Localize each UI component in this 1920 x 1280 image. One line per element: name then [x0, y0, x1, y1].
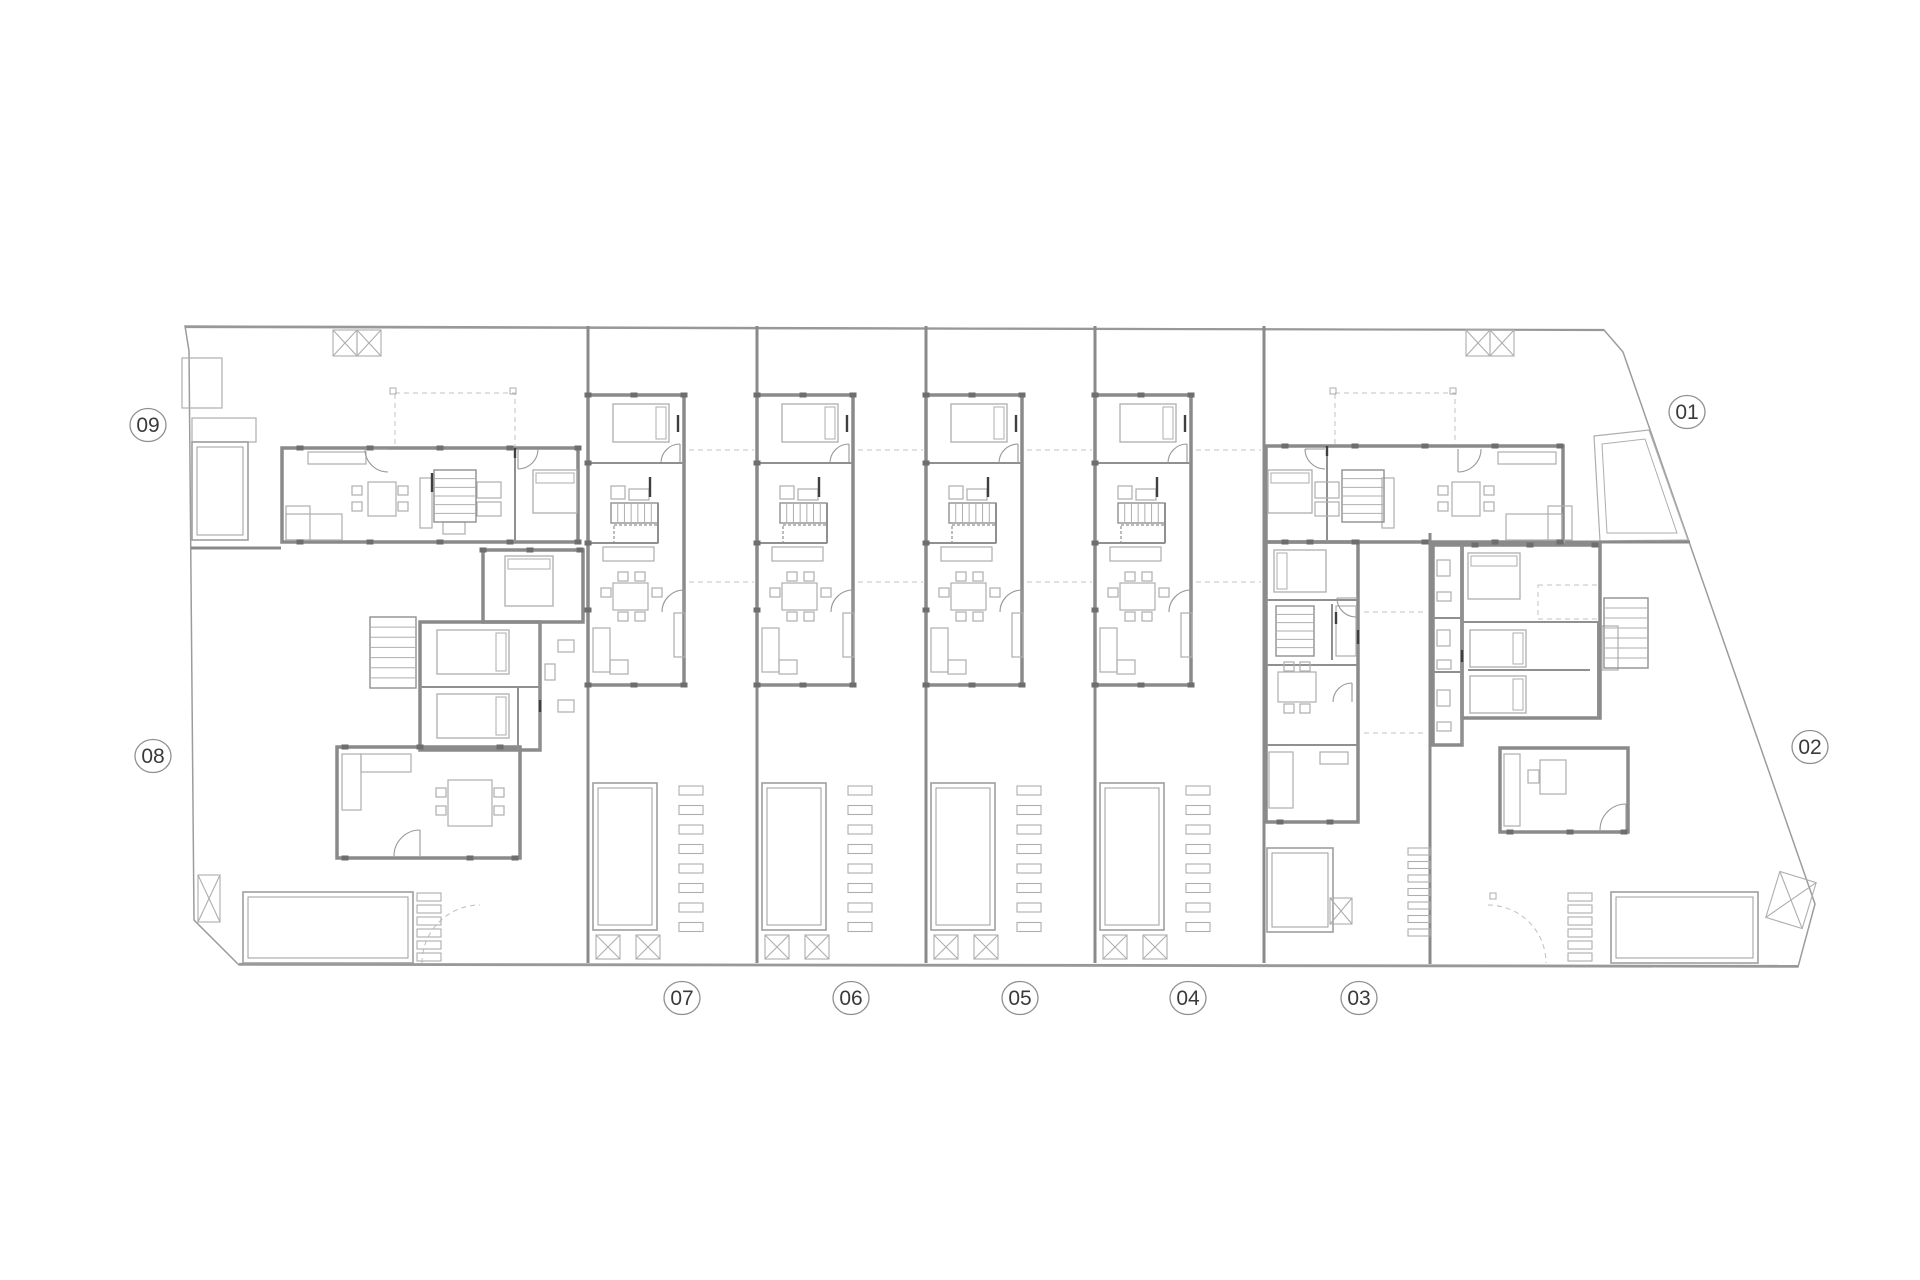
- pool: [593, 783, 657, 930]
- furniture: [787, 612, 797, 621]
- wall-column: [754, 541, 761, 546]
- wall-column: [497, 745, 504, 750]
- pool: [1611, 892, 1758, 963]
- step-slat: [417, 905, 441, 913]
- furniture: [420, 478, 432, 528]
- step-slat: [679, 806, 703, 815]
- furniture: [1284, 704, 1294, 713]
- wall-column: [342, 745, 349, 750]
- furniture: [398, 502, 408, 511]
- furniture: [1438, 502, 1448, 511]
- furniture: [1125, 612, 1135, 621]
- furniture: [1336, 606, 1356, 656]
- furniture: [770, 588, 780, 597]
- step-slat: [1568, 929, 1592, 937]
- furniture: [652, 588, 662, 597]
- wall-column: [1472, 543, 1479, 548]
- wall-column: [923, 541, 930, 546]
- wall-column: [1138, 393, 1145, 398]
- wall-column: [631, 393, 638, 398]
- wall-column: [1307, 540, 1314, 545]
- x-marker-cross: [596, 935, 620, 959]
- furniture: [956, 572, 966, 581]
- unit-label-06: 06: [839, 987, 862, 1010]
- pool-inner: [1616, 897, 1753, 958]
- dashed-swing: [422, 905, 480, 963]
- wall-column: [754, 608, 761, 613]
- wall-column: [1019, 683, 1026, 688]
- x-marker-cross: [934, 935, 958, 959]
- wall-column: [631, 683, 638, 688]
- step-slat: [1408, 902, 1430, 909]
- wall-column: [297, 446, 304, 451]
- pool-inner: [248, 897, 408, 958]
- furniture: [545, 664, 555, 680]
- bed-pillow: [536, 473, 574, 483]
- furniture: [1100, 628, 1117, 672]
- wall-column: [923, 683, 930, 688]
- furniture: [192, 418, 256, 442]
- furniture: [990, 588, 1000, 597]
- step-slat: [1186, 864, 1210, 873]
- step-slat: [848, 884, 872, 893]
- furniture: [368, 482, 396, 516]
- wall-column: [754, 683, 761, 688]
- step-slat: [1017, 923, 1041, 932]
- step-slat: [1186, 845, 1210, 854]
- floor-plan-svg: 090807060504030201: [0, 0, 1920, 1280]
- furniture: [949, 486, 963, 499]
- x-marker-cross: [805, 935, 829, 959]
- wall-column: [467, 856, 474, 861]
- furniture: [951, 583, 986, 610]
- step-slat: [1017, 864, 1041, 873]
- step-slat: [1568, 905, 1592, 913]
- step-slat: [848, 825, 872, 834]
- step-slat: [848, 806, 872, 815]
- furniture: [610, 660, 628, 674]
- x-marker-cross: [765, 935, 789, 959]
- unit-label-05: 05: [1008, 987, 1031, 1010]
- furniture: [448, 780, 492, 826]
- pool-inner: [936, 788, 990, 925]
- wall-column: [1567, 830, 1574, 835]
- house-wall: [1462, 545, 1600, 718]
- furniture: [1437, 722, 1451, 731]
- wall-column: [800, 393, 807, 398]
- wall-column: [575, 540, 582, 545]
- pool-inner: [767, 788, 821, 925]
- furniture: [308, 452, 366, 464]
- wall-column: [1592, 543, 1599, 548]
- bed: [1470, 630, 1526, 667]
- door-arc: [662, 590, 684, 612]
- furniture: [973, 612, 983, 621]
- furniture: [821, 588, 831, 597]
- furniture: [1504, 754, 1520, 826]
- site-top-wall: [185, 327, 1604, 330]
- bed: [613, 404, 669, 442]
- furniture: [629, 489, 649, 500]
- wall-column: [437, 540, 444, 545]
- door-arc: [830, 444, 849, 463]
- bed-pillow: [1471, 556, 1517, 566]
- furniture: [286, 506, 310, 540]
- step-slat: [1408, 848, 1430, 855]
- furniture: [973, 572, 983, 581]
- wall-column: [850, 683, 857, 688]
- step-slat: [1568, 941, 1592, 949]
- furniture: [1300, 662, 1310, 671]
- unit-label-07: 07: [670, 987, 693, 1010]
- door-arc: [365, 449, 388, 472]
- pergola-post-dot: [1490, 893, 1496, 899]
- step-slat: [417, 953, 441, 961]
- wall-column: [1188, 393, 1195, 398]
- wall-column: [585, 608, 592, 613]
- furniture: [1498, 452, 1556, 464]
- furniture: [1484, 502, 1494, 511]
- step-slat: [417, 893, 441, 901]
- wall-column: [1138, 683, 1145, 688]
- wall-column: [1557, 444, 1564, 449]
- wall-column: [1527, 543, 1534, 548]
- furniture: [1125, 572, 1135, 581]
- wall-column: [1492, 444, 1499, 449]
- step-slat: [679, 864, 703, 873]
- bed-pillow: [496, 633, 506, 671]
- wall-column: [1352, 444, 1359, 449]
- house-wall: [1266, 446, 1563, 542]
- wall-column: [923, 461, 930, 466]
- step-slat: [679, 786, 703, 795]
- furniture: [1108, 588, 1118, 597]
- bed: [1120, 404, 1176, 442]
- furniture: [558, 700, 574, 712]
- furniture: [494, 788, 504, 797]
- door-arc: [661, 444, 680, 463]
- furniture: [635, 612, 645, 621]
- step-slat: [1017, 786, 1041, 795]
- unit-label-03: 03: [1347, 987, 1370, 1010]
- step-slat: [1568, 917, 1592, 925]
- furniture: [477, 482, 501, 498]
- furniture: [1528, 770, 1539, 783]
- step-slat: [417, 941, 441, 949]
- stair-landing: [614, 525, 658, 543]
- furniture: [1110, 547, 1161, 561]
- unit-label-02: 02: [1798, 736, 1821, 759]
- furniture: [1548, 506, 1572, 540]
- step-slat: [1408, 929, 1430, 936]
- stair-landing: [1121, 525, 1165, 543]
- furniture: [342, 754, 361, 810]
- step-slat: [1186, 884, 1210, 893]
- x-marker-cross: [1103, 935, 1127, 959]
- step-slat: [679, 825, 703, 834]
- door-arc: [1000, 590, 1022, 612]
- door-arc: [518, 449, 538, 469]
- furniture: [1159, 588, 1169, 597]
- furniture: [286, 514, 342, 540]
- furniture: [1120, 583, 1155, 610]
- site-boundary: [185, 326, 1815, 967]
- step-slat: [679, 884, 703, 893]
- furniture: [1300, 704, 1310, 713]
- furniture: [618, 572, 628, 581]
- wall-column: [1327, 820, 1334, 825]
- step-slat: [679, 903, 703, 912]
- furniture: [352, 486, 362, 495]
- furniture: [1136, 489, 1156, 500]
- bed-pillow: [1513, 679, 1523, 710]
- furniture: [1142, 572, 1152, 581]
- wall-column: [1557, 540, 1564, 545]
- wall-column: [1282, 444, 1289, 449]
- furniture: [804, 572, 814, 581]
- step-slat: [1408, 889, 1430, 896]
- wall-column: [297, 540, 304, 545]
- x-marker-cross: [357, 330, 381, 356]
- furniture: [948, 660, 966, 674]
- wall-column: [923, 608, 930, 613]
- furniture: [1437, 592, 1451, 601]
- furniture: [782, 583, 817, 610]
- wall-column: [1422, 444, 1429, 449]
- step-slat: [1186, 903, 1210, 912]
- unit-label-01: 01: [1675, 401, 1698, 424]
- pool-inner: [1272, 853, 1328, 927]
- furniture: [1118, 486, 1132, 499]
- bed-pillow: [825, 407, 835, 439]
- furniture: [611, 486, 625, 499]
- wall-column: [437, 446, 444, 451]
- bed-pillow: [656, 407, 666, 439]
- wall-column: [512, 856, 519, 861]
- door-arc: [394, 830, 420, 856]
- furniture: [1142, 612, 1152, 621]
- step-slat: [848, 923, 872, 932]
- furniture: [443, 522, 465, 534]
- house-wall: [483, 550, 583, 622]
- furniture: [1506, 514, 1562, 540]
- pool: [1267, 848, 1333, 932]
- furniture: [1437, 560, 1450, 576]
- dashed-swing: [1488, 905, 1546, 963]
- x-marker-cross: [636, 935, 660, 959]
- wall-column: [480, 548, 487, 553]
- bed: [1268, 470, 1312, 513]
- wall-column: [800, 683, 807, 688]
- furniture: [1437, 690, 1450, 706]
- unit-label-08: 08: [141, 745, 164, 768]
- door-arc: [1600, 804, 1626, 830]
- furniture: [787, 572, 797, 581]
- dashed-pergola: [1538, 585, 1600, 619]
- furniture: [956, 612, 966, 621]
- wall-column: [1621, 830, 1628, 835]
- wall-column: [1188, 683, 1195, 688]
- wall-column: [1277, 820, 1284, 825]
- door-arc: [999, 444, 1018, 463]
- pool: [243, 892, 413, 963]
- furniture: [1540, 760, 1566, 794]
- x-marker-cross: [1490, 330, 1514, 356]
- step-slat: [1017, 884, 1041, 893]
- wall-column: [1092, 608, 1099, 613]
- pool-inner: [1105, 788, 1159, 925]
- wall-column: [1282, 540, 1289, 545]
- furniture: [779, 660, 797, 674]
- step-slat: [1568, 893, 1592, 901]
- pool: [192, 442, 248, 540]
- step-slat: [1017, 825, 1041, 834]
- bed-pillow: [508, 559, 550, 569]
- furniture: [1452, 482, 1480, 516]
- pool: [762, 783, 826, 930]
- bed-pillow: [1277, 553, 1287, 589]
- door-arc: [1333, 683, 1352, 702]
- wall-column: [1092, 683, 1099, 688]
- furniture: [601, 588, 611, 597]
- wall-column: [507, 446, 514, 451]
- step-slat: [417, 917, 441, 925]
- bed: [1470, 676, 1526, 713]
- step-slat: [1017, 845, 1041, 854]
- furniture: [436, 788, 446, 797]
- furniture: [613, 583, 648, 610]
- bed: [782, 404, 838, 442]
- dashed-pergola: [395, 393, 515, 447]
- bed-pillow: [496, 697, 506, 735]
- wall-column: [585, 393, 592, 398]
- stairs: [370, 617, 416, 688]
- wall-column: [507, 540, 514, 545]
- furniture: [603, 547, 654, 561]
- furniture: [941, 547, 992, 561]
- pool: [1100, 783, 1164, 930]
- bed-pillow: [1163, 407, 1173, 439]
- step-slat: [1017, 903, 1041, 912]
- wall-column: [681, 393, 688, 398]
- step-slat: [1017, 806, 1041, 815]
- wall-column: [1492, 540, 1499, 545]
- pool: [931, 783, 995, 930]
- wall-column: [585, 461, 592, 466]
- x-marker-cross: [333, 330, 357, 356]
- wall-column: [1092, 393, 1099, 398]
- furniture: [494, 806, 504, 815]
- furniture: [1284, 662, 1294, 671]
- step-slat: [679, 923, 703, 932]
- furniture: [593, 628, 610, 672]
- step-slat: [679, 845, 703, 854]
- pool-inner: [598, 788, 652, 925]
- wall-column: [342, 856, 349, 861]
- step-slat: [1568, 953, 1592, 961]
- wall-column: [1092, 541, 1099, 546]
- x-marker-cross: [974, 935, 998, 959]
- unit-label-09: 09: [136, 414, 159, 437]
- wall-column: [367, 446, 374, 451]
- step-slat: [1408, 916, 1430, 923]
- wall-column: [575, 446, 582, 451]
- bed-pillow: [1513, 633, 1523, 664]
- wall-column: [1092, 461, 1099, 466]
- furniture: [804, 612, 814, 621]
- pool-inner: [197, 447, 243, 535]
- furniture: [361, 754, 411, 772]
- step-slat: [1186, 825, 1210, 834]
- stair-landing: [783, 525, 827, 543]
- furniture: [762, 628, 779, 672]
- furniture: [1117, 660, 1135, 674]
- door-arc: [1169, 590, 1191, 612]
- step-slat: [1408, 862, 1430, 869]
- furniture: [352, 502, 362, 511]
- wall-column: [1353, 540, 1360, 545]
- stair-landing: [952, 525, 996, 543]
- wall-column: [367, 540, 374, 545]
- step-slat: [1408, 875, 1430, 882]
- furniture: [931, 628, 948, 672]
- furniture: [477, 502, 501, 516]
- door-arc: [1168, 444, 1187, 463]
- furniture: [1438, 486, 1448, 495]
- floor-plan: 090807060504030201: [0, 0, 1920, 1280]
- bed: [505, 556, 553, 606]
- furniture: [772, 547, 823, 561]
- furniture: [436, 806, 446, 815]
- furniture: [967, 489, 987, 500]
- wall-column: [754, 461, 761, 466]
- furniture: [1269, 752, 1293, 808]
- step-slat: [848, 864, 872, 873]
- wall-column: [969, 683, 976, 688]
- bed: [437, 630, 509, 674]
- furniture: [1484, 486, 1494, 495]
- wall-column: [585, 541, 592, 546]
- wall-column: [1507, 830, 1514, 835]
- step-slat: [1186, 806, 1210, 815]
- wall-column: [969, 393, 976, 398]
- wall-column: [1019, 393, 1026, 398]
- door-arc: [1305, 449, 1325, 469]
- x-marker-cross: [1466, 330, 1490, 356]
- door-arc: [831, 590, 853, 612]
- furniture: [182, 358, 222, 408]
- unit-label-04: 04: [1176, 987, 1200, 1010]
- wall-column: [577, 548, 584, 553]
- furniture: [1437, 660, 1451, 669]
- wall-column: [417, 745, 424, 750]
- step-slat: [848, 903, 872, 912]
- step-slat: [1186, 786, 1210, 795]
- wall-column: [1422, 540, 1429, 545]
- door-arc: [1458, 449, 1481, 472]
- step-slat: [848, 786, 872, 795]
- bed: [1468, 553, 1520, 599]
- bed: [533, 470, 577, 513]
- furniture: [635, 572, 645, 581]
- x-marker-cross: [1143, 935, 1167, 959]
- bed: [951, 404, 1007, 442]
- wall-column: [585, 683, 592, 688]
- step-slat: [848, 845, 872, 854]
- furniture: [939, 588, 949, 597]
- bed-pillow: [994, 407, 1004, 439]
- bed: [1274, 550, 1326, 592]
